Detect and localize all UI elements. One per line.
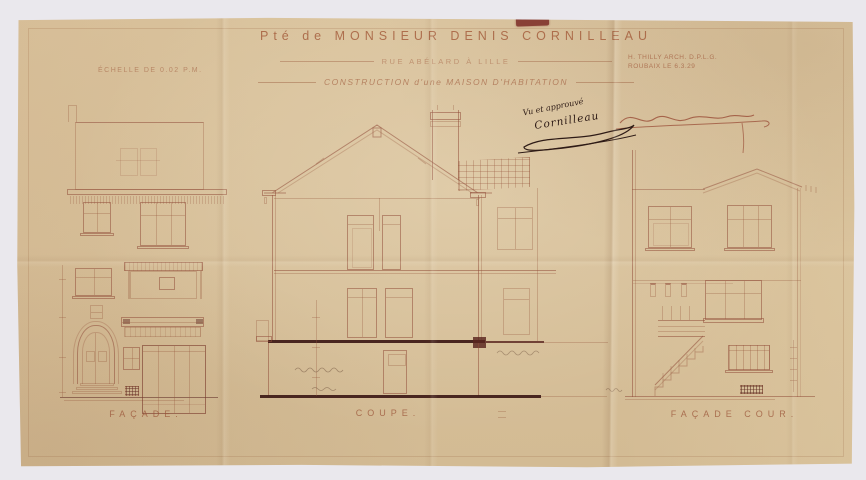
rule-left <box>280 61 374 62</box>
dimension-tick <box>312 317 320 318</box>
red-stamp-mark <box>516 16 549 26</box>
glazed-bay <box>705 280 762 320</box>
chimney-stub <box>68 105 77 122</box>
window <box>75 268 112 296</box>
entrance-step <box>72 391 122 394</box>
drawing-paper: Pté de MONSIEUR DENIS CORNILLEAU RUE ABÉ… <box>16 17 856 469</box>
dimension-tick <box>59 357 66 358</box>
fold-crease-vertical <box>424 17 438 469</box>
window-sill <box>72 296 115 299</box>
fold-crease-vertical <box>786 17 798 469</box>
gutter-left <box>262 190 276 196</box>
title-subline-address: RUE ABÉLARD À LILLE <box>280 57 612 66</box>
ceiling-line <box>274 198 480 199</box>
balcony-band <box>121 317 204 327</box>
basement-wall-right <box>478 343 479 396</box>
ground-floor-slab <box>268 340 485 343</box>
basement-slab <box>260 395 541 398</box>
basement-wall-left <box>268 343 269 396</box>
interior-door <box>347 288 377 338</box>
railing-baluster <box>680 306 681 320</box>
right-wall-edge-outer <box>800 188 801 397</box>
window <box>727 205 772 248</box>
garage-door <box>142 345 206 414</box>
pencil-note-squiggle <box>497 349 543 357</box>
scale-note: ÉCHELLE DE 0.02 P.M. <box>98 67 228 74</box>
bay-frame <box>130 271 197 299</box>
dimension-tick <box>59 279 66 280</box>
section-wall-left-inner <box>275 195 276 341</box>
faint-window-sketch <box>120 148 138 176</box>
railing-baluster <box>662 306 663 320</box>
bay-post <box>200 271 202 299</box>
entrance-step <box>76 387 118 390</box>
rear-roof-tile-grid <box>458 157 530 191</box>
section-wall-right-inner <box>481 195 482 341</box>
rear-window-lower <box>503 288 530 335</box>
balcony-apron <box>124 327 201 337</box>
section-wall-right <box>478 195 479 341</box>
fold-crease-vertical <box>216 17 230 469</box>
section-wall-left <box>272 195 273 341</box>
rear-roof-slope <box>632 165 832 210</box>
window <box>83 202 111 233</box>
downpipe-left <box>264 197 267 204</box>
ventilation-grille <box>125 386 139 396</box>
window-sill <box>725 370 773 373</box>
title-subline-project: CONSTRUCTION d'une MAISON D'HABITATION <box>258 77 634 87</box>
entrance-step <box>80 383 114 386</box>
window-sill <box>645 248 695 251</box>
interior-door <box>385 288 413 338</box>
dimension-tick <box>59 392 66 393</box>
ornament-window <box>90 305 103 319</box>
railing-post <box>681 283 687 297</box>
rule-left <box>258 82 316 83</box>
rule-right <box>518 61 612 62</box>
dimension-tick <box>59 317 66 318</box>
basement-slab-extension <box>541 396 607 397</box>
dimension-line <box>316 300 317 396</box>
lower-window <box>728 345 770 370</box>
window <box>140 202 186 246</box>
dimension-tick <box>312 377 320 378</box>
window-sill <box>137 246 189 249</box>
pencil-note-squiggle <box>295 366 347 374</box>
fold-crease-horizontal <box>16 255 856 267</box>
scanned-sheet-stage: Pté de MONSIEUR DENIS CORNILLEAU RUE ABÉ… <box>0 0 866 480</box>
dimension-line <box>62 265 63 397</box>
architect-credit-line1: H. THILLY ARCH. D.P.L.G. <box>628 54 788 61</box>
railing-baluster <box>689 306 690 320</box>
railing-baluster <box>671 306 672 320</box>
areaway-step <box>256 336 272 342</box>
window <box>648 206 692 248</box>
cornice-band <box>67 189 227 195</box>
railing-post <box>650 283 656 297</box>
slab-extension <box>544 342 608 343</box>
tick-mark <box>498 411 506 418</box>
slab-node <box>473 337 486 348</box>
address-text: RUE ABÉLARD À LILLE <box>382 57 511 66</box>
pencil-note-squiggle <box>312 386 340 392</box>
faint-axis-line <box>116 160 160 161</box>
ground-line-2 <box>625 399 775 400</box>
exterior-staircase <box>646 332 726 412</box>
ventilation-grille <box>740 385 763 394</box>
window-sill <box>724 248 775 251</box>
basement-door <box>383 350 407 394</box>
floor-line-etage <box>274 270 556 271</box>
basement-window <box>123 347 140 370</box>
bay-sill-band <box>703 318 764 323</box>
label-facade: FAÇADE. <box>76 409 216 419</box>
page-title: Pté de MONSIEUR DENIS CORNILLEAU <box>206 29 706 43</box>
ground-floor-slab-right <box>486 341 544 343</box>
architect-credit-line2: ROUBAIX LE 6.3.29 <box>628 63 788 70</box>
floor-line-etage-2 <box>274 273 556 274</box>
window-sill <box>80 233 114 236</box>
flue-line <box>379 198 380 231</box>
dimension-tick <box>312 347 320 348</box>
rear-window-upper <box>497 207 533 250</box>
project-text: CONSTRUCTION d'une MAISON D'HABITATION <box>324 77 568 87</box>
railing-post <box>665 283 671 297</box>
entrance-door-leaf <box>82 332 110 384</box>
label-facade-cour: FAÇADE COUR. <box>642 409 827 419</box>
faint-window-sketch <box>140 148 157 176</box>
